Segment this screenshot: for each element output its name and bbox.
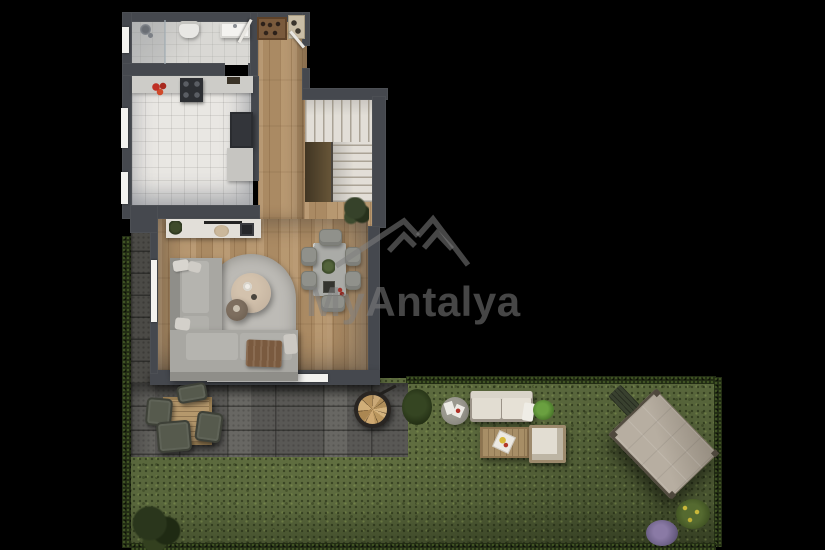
pillow (283, 333, 298, 354)
throw-blanket (246, 339, 283, 367)
kitchen-side-counter (227, 148, 253, 181)
pillow (174, 317, 190, 331)
patio-chair-right (194, 410, 224, 443)
stair-winder-steps (305, 94, 372, 142)
wall-stair-right (372, 96, 386, 228)
wall-corner-chunk (130, 205, 158, 233)
logo-left-slope (336, 221, 418, 266)
round-side-table (226, 299, 248, 321)
kitchen-window-upper (121, 108, 128, 148)
table-tray-outdoor (492, 430, 516, 454)
hedge-right (714, 377, 722, 547)
large-shrub-bottom-left (132, 504, 184, 550)
under-stair-shadow (305, 142, 332, 202)
sofa-cushion (472, 398, 501, 419)
cooktop (180, 78, 203, 102)
yellow-green-bush (676, 499, 710, 529)
fire-pit (354, 391, 391, 428)
garden-coffee-table (480, 427, 529, 458)
purple-bush (646, 520, 678, 546)
living-side-window (151, 260, 157, 322)
bush-by-firepit (402, 389, 432, 425)
seat-cushion (186, 333, 238, 360)
garden-armchair (529, 425, 566, 463)
counter-item (227, 77, 240, 84)
kitchen-window-lower (121, 172, 128, 204)
mountain-logo (330, 210, 500, 280)
bathroom-window (122, 27, 129, 53)
logo-inner-left-chevron (389, 235, 415, 251)
tv-frame (240, 223, 254, 236)
table-decor-dish (243, 282, 252, 291)
patio-chair-bottom (156, 420, 193, 454)
canopy-post (609, 430, 617, 438)
side-table-decor (233, 305, 240, 312)
table-decor-item (251, 294, 257, 300)
faucet-icon (233, 24, 237, 28)
shoe-rack (257, 17, 287, 40)
card-item-red (452, 404, 465, 419)
tomatoes (151, 82, 168, 96)
hedge-bottom (131, 543, 716, 550)
hedge-top (406, 376, 716, 384)
stair-straight-flight (332, 142, 372, 202)
shower-head-icon (140, 24, 151, 35)
sideboard-plant (169, 221, 182, 235)
fridge-column (230, 112, 253, 148)
fire-pit-log-lines (358, 395, 387, 424)
wall-bathroom-bottom-left (122, 63, 225, 76)
bush-by-sofa (533, 400, 554, 420)
stair-railing (331, 142, 333, 202)
hedge-left (122, 236, 131, 548)
decor-bowl (214, 225, 229, 237)
garden-sofa (470, 391, 533, 422)
shower-glass-partition (164, 20, 166, 64)
garden-round-side-table (441, 397, 469, 425)
toilet (179, 21, 199, 38)
soundbar (204, 221, 242, 224)
floorplan-render: MyAntalya (0, 0, 825, 550)
dining-chair-left-1 (301, 247, 317, 266)
watermark-brand-text: MyAntalya (306, 278, 521, 326)
sideboard (166, 219, 261, 238)
